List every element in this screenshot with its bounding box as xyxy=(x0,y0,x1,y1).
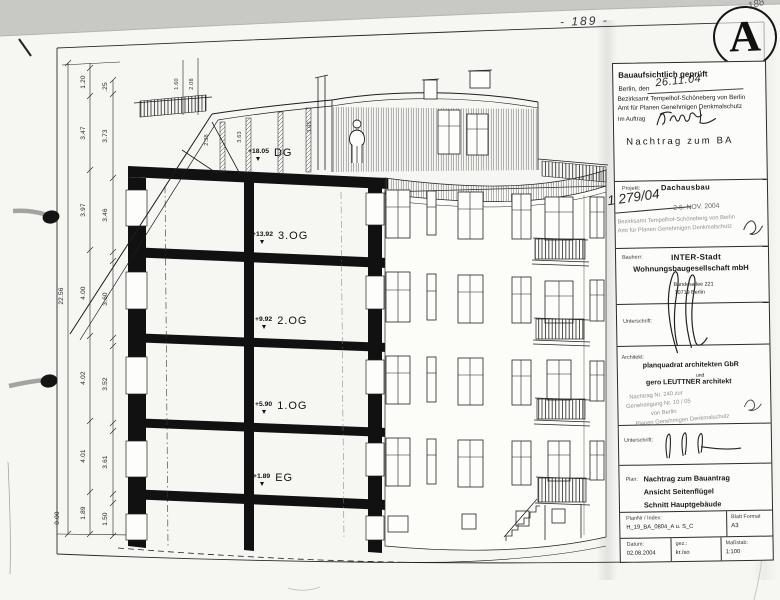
floor-label-2og: +9.92 2.OG xyxy=(255,317,308,329)
floor-name: DG xyxy=(274,147,293,159)
dimension-value: 1.50 xyxy=(102,507,110,531)
level-marker-icon xyxy=(260,482,264,486)
level-marker-icon xyxy=(262,325,266,329)
dimension-value: .25 xyxy=(102,75,110,99)
floor-elevation: +18.05 xyxy=(248,149,269,156)
approval-stamp-section: Bauaufsichtlich geprüft Berlin, den 26.1… xyxy=(613,62,767,181)
level-marker-icon xyxy=(260,240,264,244)
floor-name: EG xyxy=(275,472,293,484)
faint-stamp-line: Amt für Planen Genehmigen Denkmalschutz xyxy=(618,224,733,235)
project-section: Projekt: Dachausbau 1 279/04 2 6. NOV. 2… xyxy=(615,179,768,248)
stamp-note: Nachtrag zum BA xyxy=(626,135,734,148)
official-signature xyxy=(654,104,726,133)
scanned-architectural-drawing: - 189 - 188 A +18.05 DG +13.92 3.OG +9.9… xyxy=(0,0,780,600)
date-value: 02.08.2004 xyxy=(627,550,656,556)
received-date-stamp: 2 6. NOV. 2004 xyxy=(673,203,720,212)
stamp-initials xyxy=(742,397,762,413)
revision-letter: A xyxy=(728,14,761,59)
architect-signature xyxy=(655,427,746,462)
dimension-value: 3.05 xyxy=(306,115,314,139)
page-number: - 189 - xyxy=(560,13,609,29)
drawn-value: kr./so xyxy=(676,550,690,556)
plan-number-section: PlanNr / Index: H_19_BA_0804_A u. S_C Bl… xyxy=(620,510,772,538)
scale-label: Maßstab: xyxy=(726,540,749,546)
level-marker-icon xyxy=(262,410,266,414)
dimension-value: 22.56 xyxy=(58,284,66,308)
chimney xyxy=(424,80,437,99)
plan-label: Plan: xyxy=(626,477,638,483)
client-name1: INTER-Stadt xyxy=(671,252,721,262)
floor-label-3og: +13.92 3.OG xyxy=(252,232,308,244)
floor-name: 3.OG xyxy=(278,230,308,242)
dimension-value: 3.52 xyxy=(102,372,110,396)
dimension-value: 1.20 xyxy=(80,70,88,94)
dimension-value: 4.02 xyxy=(80,366,88,390)
meta-section: Datum: 02.08.2004 gez.: kr./so Maßstab: … xyxy=(620,536,772,562)
format-label: Blatt Format xyxy=(731,514,760,520)
column-divider xyxy=(726,511,727,536)
dimension-value: 3.60 xyxy=(102,287,110,311)
dimension-value: 3.97 xyxy=(80,198,88,222)
level-marker-icon xyxy=(256,157,260,161)
dimension-value: 3.46 xyxy=(102,203,110,227)
column-divider xyxy=(720,537,721,560)
order-label: Im Auftrag xyxy=(618,116,645,122)
scale-value: 1:100 xyxy=(726,549,741,555)
architect-label: Architekt: xyxy=(622,355,645,361)
dimension-value: 3.61 xyxy=(102,450,110,474)
dimension-value: 2.08 xyxy=(188,72,196,96)
plan-line1: Nachtrag zum Bauantrag xyxy=(643,473,730,483)
dimension-value: 3.73 xyxy=(102,124,110,148)
floor-name: 2.OG xyxy=(277,315,307,327)
floor-label-eg: +1.89 EG xyxy=(253,474,293,486)
architect-section: Architekt: planquadrat architekten GbR u… xyxy=(617,344,770,425)
authority-line1: Bezirksamt Tempelhof-Schöneberg von Berl… xyxy=(618,94,746,103)
approval-place-label: Berlin, den xyxy=(618,85,649,92)
stamp-initials xyxy=(741,218,763,236)
drawn-label: gez.: xyxy=(676,541,688,547)
floor-name: 1.OG xyxy=(277,400,307,412)
floor-elevation: +1.89 xyxy=(253,474,270,481)
ground-level-value: 0.00 xyxy=(54,506,62,530)
client-label: Bauherr: xyxy=(622,255,643,261)
file-number-handwritten: 1 279/04 xyxy=(606,186,660,208)
dimension-value: 2.38 xyxy=(203,128,211,152)
dimension-value: 4.01 xyxy=(80,444,88,468)
chimney xyxy=(470,71,490,88)
signature-section-2: Unterschrift: xyxy=(619,423,772,465)
floor-label-1og: +5.90 1.OG xyxy=(255,402,308,414)
format-value: A3 xyxy=(731,523,738,529)
dimension-value: 4.00 xyxy=(80,281,88,305)
dimension-value: 3.47 xyxy=(80,121,88,145)
signature-label: Unterschrift: xyxy=(624,437,653,443)
date-label: Datum: xyxy=(627,542,644,548)
floor-elevation: +13.92 xyxy=(252,232,273,239)
dimension-value: 1.60 xyxy=(173,72,181,96)
floor-elevation: +9.92 xyxy=(255,317,272,324)
dimension-value: 3.63 xyxy=(236,125,244,149)
entrance-porch xyxy=(538,478,586,502)
plan-line2: Ansicht Seitenflügel xyxy=(644,486,714,496)
floor-elevation: +5.90 xyxy=(255,402,272,409)
plan-number-value: H_19_BA_0804_A u. S_C xyxy=(626,524,693,531)
column-divider xyxy=(670,538,671,561)
architect-firm: planquadrat architekten GbR xyxy=(643,361,739,370)
floor-label-dg: +18.05 DG xyxy=(248,149,292,161)
plan-section: Plan: Nachtrag zum Bauantrag Ansicht Sei… xyxy=(619,463,772,512)
title-block: Bauaufsichtlich geprüft Berlin, den 26.1… xyxy=(612,61,774,563)
dimension-value: 1.89 xyxy=(80,501,88,525)
plan-line3: Schnitt Hauptgebäude xyxy=(644,499,722,509)
project-name: Dachausbau xyxy=(661,182,710,192)
plan-number-label: PlanNr / Index: xyxy=(626,515,662,522)
